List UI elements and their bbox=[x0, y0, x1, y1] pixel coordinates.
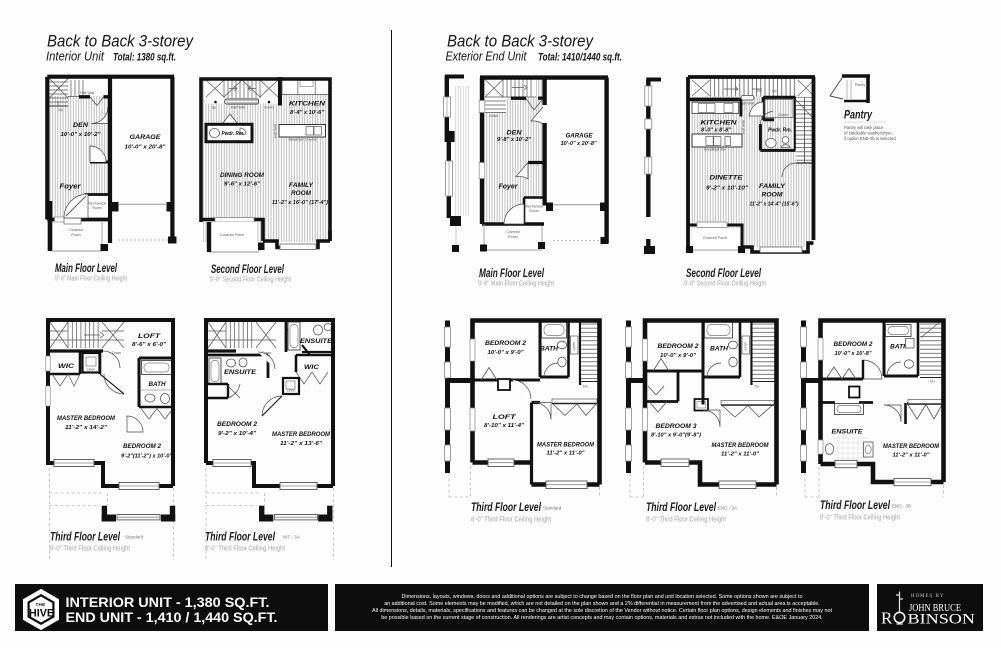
svg-text:be possible based on the curre: be possible based on the current stage o… bbox=[381, 615, 822, 621]
svg-text:HIVE: HIVE bbox=[29, 608, 54, 620]
svg-text:All dimensions, details, mater: All dimensions, details, materials, spec… bbox=[372, 608, 832, 614]
svg-text:INTERIOR UNIT - 1,380 SQ.FT.: INTERIOR UNIT - 1,380 SQ.FT. bbox=[66, 595, 270, 610]
svg-text:R: R bbox=[881, 609, 893, 628]
svg-text:THE: THE bbox=[35, 602, 45, 607]
svg-text:BINSON: BINSON bbox=[908, 612, 976, 628]
svg-text:an additional cost. Some eleme: an additional cost. Some elements may be… bbox=[384, 601, 820, 607]
svg-text:Dimensions, layouts, windows,: Dimensions, layouts, windows, doors and … bbox=[402, 594, 803, 600]
svg-text:END UNIT - 1,410 / 1,440 SQ.FT: END UNIT - 1,410 / 1,440 SQ.FT. bbox=[66, 610, 278, 625]
svg-text:HOMES BY: HOMES BY bbox=[911, 594, 944, 599]
